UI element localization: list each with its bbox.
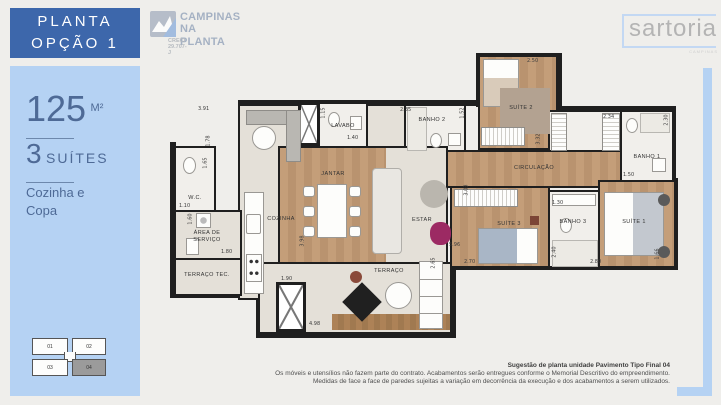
shaft-icon [298, 102, 320, 146]
banho2-toilet [430, 133, 442, 148]
shaft-icon [276, 282, 306, 332]
measurement: 2.30 [664, 114, 670, 125]
suite3-bed [478, 228, 538, 264]
wc-toilet [183, 157, 196, 174]
measurement: 2.40 [552, 246, 558, 257]
measurement: 2.35 [400, 107, 411, 113]
suite2-wardrobe [481, 127, 525, 146]
measurement: 2.50 [527, 58, 538, 64]
suite1-nightstand [658, 194, 670, 206]
terraco-shelf [419, 261, 443, 329]
measurement: 1.40 [347, 135, 358, 141]
label-terraco: TERRAÇO [374, 268, 404, 274]
measurement: 2.65 [431, 257, 437, 268]
label-wc: W.C. [188, 195, 202, 201]
label-jantar: JANTAR [321, 171, 344, 177]
suite3-blanket [479, 229, 517, 263]
washer-icon [196, 213, 211, 228]
suite3-pouf [530, 216, 539, 225]
copa-counter-side [286, 110, 301, 162]
measurement: 1.78 [206, 135, 212, 146]
measurement: 1.60 [188, 213, 194, 224]
label-suite3: SUÍTE 3 [497, 221, 521, 227]
measurement: 1.10 [179, 203, 190, 209]
measurement: 3.32 [536, 133, 542, 144]
terraco-table [385, 282, 412, 309]
closet-wardrobe-left [551, 113, 567, 151]
floorplan: LAVABO BANHO 2 SUÍTE 2 CIRCULAÇÃO BANHO … [0, 0, 721, 405]
label-terraco-tec: TERRAÇO TEC. [184, 272, 230, 278]
sofa [372, 168, 402, 254]
measurement: 3.98 [300, 235, 306, 246]
dining-chair [349, 206, 361, 217]
label-cozinha: COZINHA [267, 216, 295, 222]
label-banho3: BANHO 3 [560, 219, 587, 225]
measurement: 1.90 [281, 276, 292, 282]
label-area-servico: ÁREA DE SERVIÇO [186, 230, 228, 244]
measurement: 2.80 [590, 259, 601, 265]
dining-chair [349, 226, 361, 237]
banho1-toilet [626, 118, 638, 133]
armchair-magenta [430, 222, 451, 245]
stove-icon [246, 254, 262, 282]
label-circulacao: CIRCULAÇÃO [514, 165, 554, 171]
dining-chair [303, 186, 315, 197]
copa-table [252, 126, 276, 150]
label-estar: ESTAR [412, 217, 432, 223]
measurement: 1.52 [460, 107, 466, 118]
terraco-side-table [350, 271, 362, 283]
measurement: 4.98 [309, 321, 320, 327]
dining-chair [303, 206, 315, 217]
measurement: 1.66 [655, 248, 661, 259]
measurement: 1.30 [552, 200, 563, 206]
kitchen-sink [246, 214, 261, 234]
measurement: 2.34 [603, 114, 614, 120]
banho2-shower [407, 107, 427, 151]
dining-chair [349, 186, 361, 197]
label-banho1: BANHO 1 [634, 154, 661, 160]
measurement: 2.70 [464, 259, 475, 265]
dining-table [317, 184, 347, 238]
label-banho2: BANHO 2 [419, 117, 446, 123]
measurement: 5.96 [449, 242, 460, 248]
label-suite1: SUÍTE 1 [622, 219, 646, 225]
measurement: 1.50 [623, 172, 634, 178]
measurement: 3.03 [464, 184, 470, 195]
banho1-sink [652, 158, 666, 172]
measurement: 1.15 [321, 107, 327, 118]
banho2-sink [448, 133, 461, 146]
measurement: 1.65 [203, 157, 209, 168]
label-lavabo: LAVABO [331, 123, 355, 129]
label-suite2: SUÍTE 2 [509, 105, 533, 111]
measurement: 1.80 [221, 249, 232, 255]
estar-rug [420, 180, 448, 208]
measurement: 3.91 [198, 106, 209, 112]
